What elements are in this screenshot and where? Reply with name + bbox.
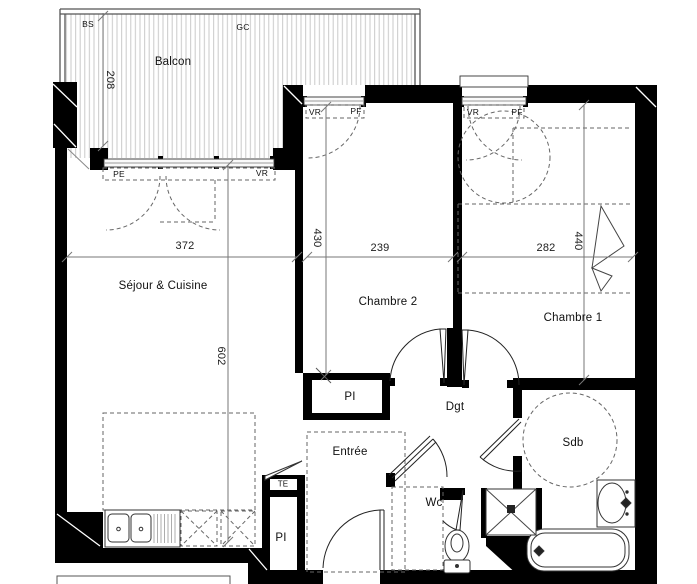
kitchen-sink <box>105 510 180 547</box>
wardrobe-chambre1 <box>592 206 624 291</box>
door-chambre2 <box>390 329 446 383</box>
annotation-pf-chambre2: PF <box>350 106 361 116</box>
room-label-sejour: Séjour & Cuisine <box>119 280 208 292</box>
room-label-entree: Entrée <box>332 446 367 458</box>
dimension-sejour-length: 602 <box>215 347 227 366</box>
annotation-vr-sejour: VR <box>256 168 268 178</box>
door-chambre1 <box>462 330 519 385</box>
technical-duct <box>486 489 536 535</box>
annotation-gc: GC <box>236 22 249 32</box>
room-label-pi-chambre2: PI <box>344 391 355 403</box>
adjacent-structure-outline <box>57 576 230 584</box>
room-label-balcon: Balcon <box>155 56 191 68</box>
window-chambre1-outer <box>460 76 528 87</box>
room-label-chambre1: Chambre 1 <box>544 312 603 324</box>
toilet <box>444 530 470 573</box>
annotation-bs: BS <box>82 19 94 29</box>
door-entree-dgt <box>389 436 447 481</box>
sink-drainer <box>154 514 175 543</box>
annotation-vr-chambre2: VR <box>309 107 321 117</box>
bathtub <box>527 529 629 571</box>
door-entrance <box>323 510 384 570</box>
room-label-wc: Wc <box>425 497 442 509</box>
kitchen-counter-outline <box>103 413 255 510</box>
chambre1-window-swing <box>458 105 550 203</box>
room-label-dgt: Dgt <box>446 401 465 413</box>
appliance-box-2 <box>221 511 255 546</box>
floorplan-page: BS GC Balcon 208 PE VR VR PF VR PF 372 4… <box>0 0 697 584</box>
dimension-sejour-width: 372 <box>176 240 195 252</box>
sejour-door-swing <box>103 168 275 230</box>
annotation-te: TE <box>278 480 289 489</box>
annotation-pe: PE <box>113 169 125 179</box>
dimension-chambre1-depth: 440 <box>572 232 584 251</box>
dimension-balcon-depth: 208 <box>104 71 116 90</box>
dashed-annotations <box>103 105 632 572</box>
annotation-vr-chambre1: VR <box>467 107 479 117</box>
annotation-pf-chambre1: PF <box>511 107 522 117</box>
bed-outline-chambre1 <box>458 128 632 293</box>
dim-line-372 <box>62 252 302 262</box>
washbasin <box>597 480 635 527</box>
dimension-chambre1-width: 282 <box>537 242 556 254</box>
dimension-chambre2-depth: 430 <box>311 229 323 248</box>
room-label-chambre2: Chambre 2 <box>359 296 418 308</box>
dimension-chambre2-width: 239 <box>371 242 390 254</box>
room-label-pi-entree: PI <box>275 532 286 544</box>
appliance-box-1 <box>181 511 217 546</box>
room-label-sdb: Sdb <box>562 437 583 449</box>
